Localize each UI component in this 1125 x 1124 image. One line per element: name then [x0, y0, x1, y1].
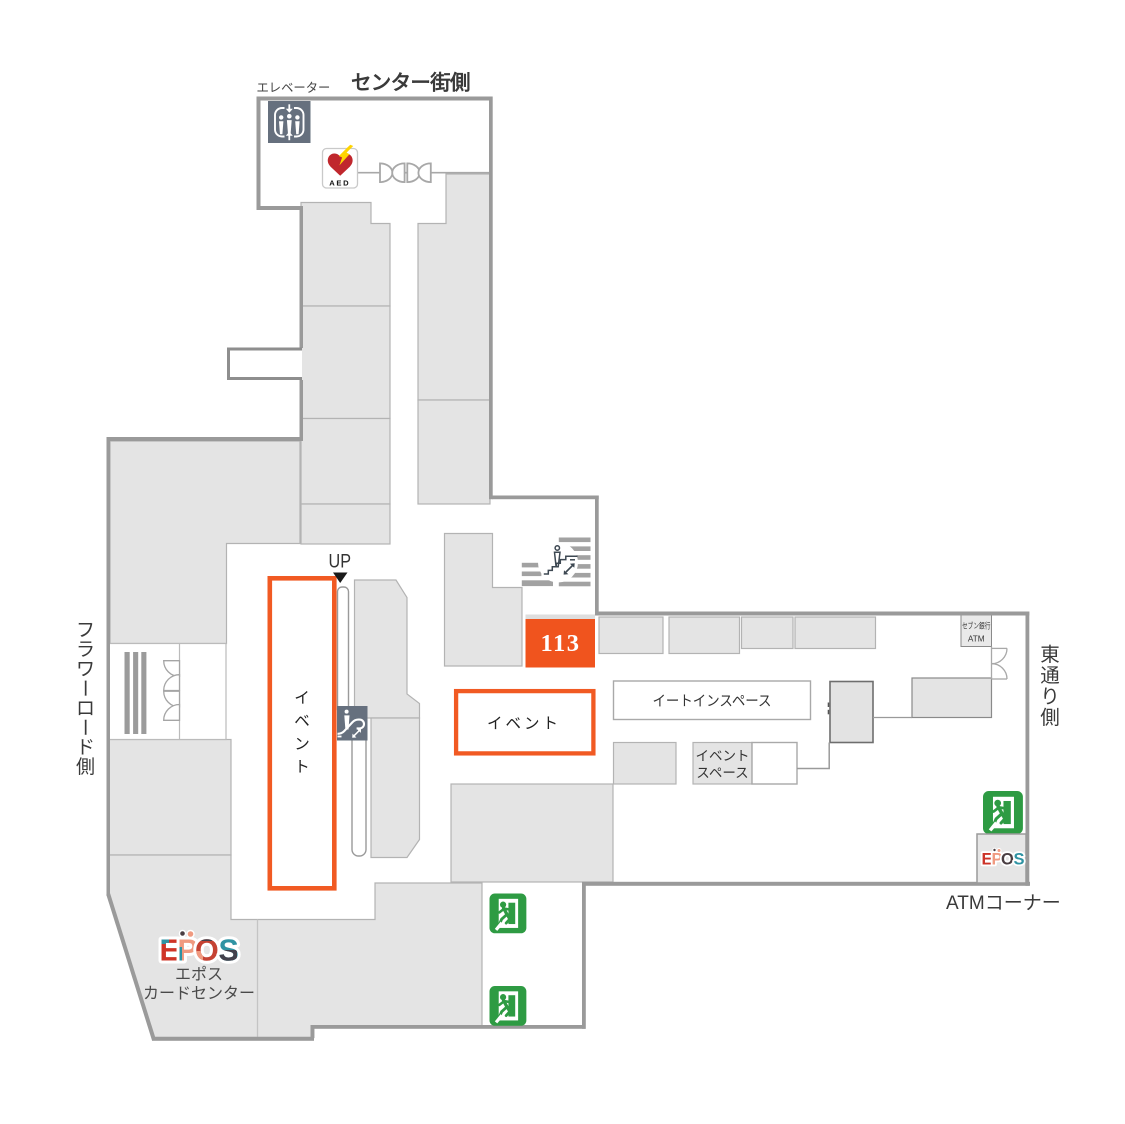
- svg-text:ン: ン: [294, 736, 310, 753]
- svg-text:イベント: イベント: [696, 749, 750, 764]
- svg-text:113: 113: [541, 630, 581, 657]
- svg-text:ロ: ロ: [76, 698, 95, 719]
- svg-text:エポス: エポス: [175, 966, 223, 984]
- svg-text:スペース: スペース: [696, 766, 748, 781]
- svg-text:AED: AED: [329, 179, 350, 188]
- svg-text:ATM: ATM: [968, 635, 985, 644]
- svg-text:ー: ー: [74, 718, 95, 737]
- svg-text:ATMコーナー: ATMコーナー: [946, 893, 1061, 914]
- svg-text:り: り: [1040, 686, 1060, 708]
- svg-text:側: 側: [76, 756, 95, 778]
- svg-text:フ: フ: [76, 620, 95, 641]
- svg-text:ベ: ベ: [294, 713, 310, 730]
- svg-text:ワ: ワ: [76, 659, 95, 680]
- svg-text:ド: ド: [76, 738, 95, 759]
- svg-text:ラ: ラ: [76, 640, 95, 661]
- svg-text:通: 通: [1040, 665, 1060, 687]
- svg-text:カードセンター: カードセンター: [143, 985, 255, 1003]
- svg-text:側: 側: [1040, 707, 1060, 729]
- svg-text:ー: ー: [74, 679, 95, 698]
- svg-text:ト: ト: [294, 759, 310, 776]
- svg-text:イ: イ: [294, 690, 310, 707]
- svg-text:UP: UP: [329, 552, 352, 573]
- svg-text:O: O: [1001, 851, 1014, 869]
- svg-text:イベント: イベント: [487, 716, 561, 733]
- svg-text:イートインスペース: イートインスペース: [653, 694, 772, 710]
- svg-text:エレベーター: エレベーター: [257, 81, 331, 95]
- svg-text:東: 東: [1040, 644, 1060, 666]
- svg-text:S: S: [1014, 851, 1025, 869]
- svg-text:セブン銀行: セブン銀行: [962, 621, 991, 631]
- svg-text:センター街側: センター街側: [351, 71, 470, 95]
